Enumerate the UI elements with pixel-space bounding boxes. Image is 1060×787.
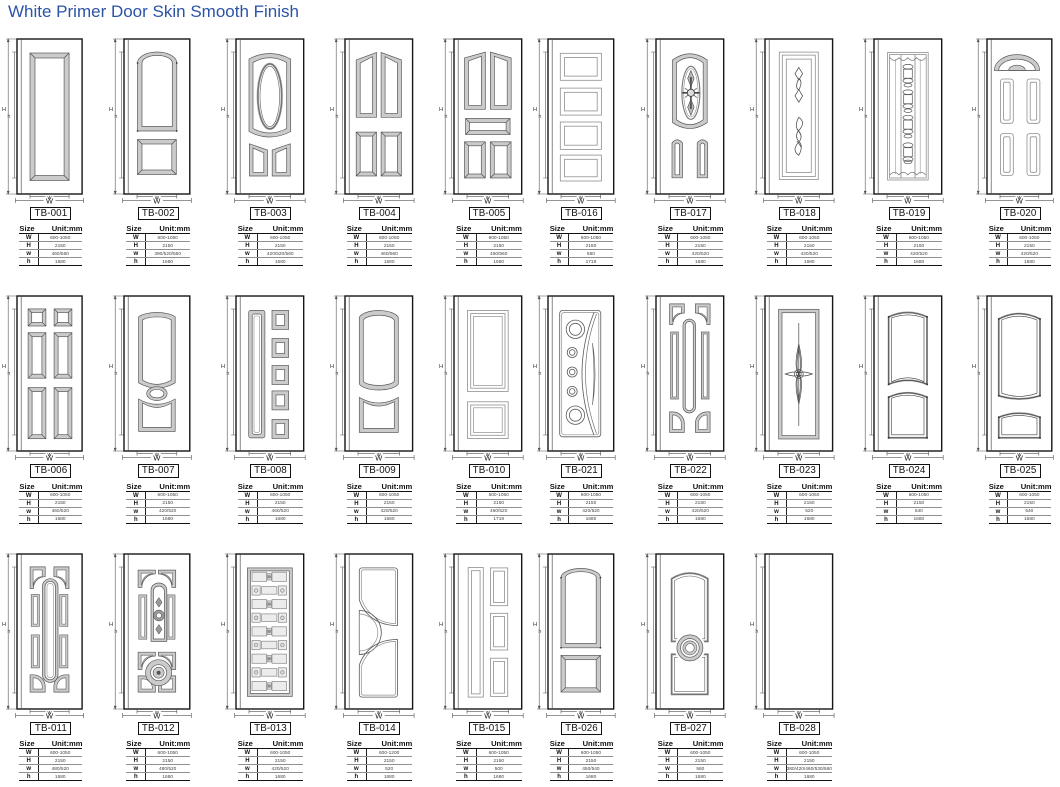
svg-text:h: h: [538, 371, 541, 377]
svg-text:W: W: [154, 711, 161, 719]
svg-text:h: h: [646, 371, 649, 377]
svg-text:H: H: [533, 107, 537, 113]
svg-text:W: W: [266, 711, 273, 719]
svg-text:H: H: [109, 107, 113, 113]
svg-text:H: H: [750, 107, 754, 113]
svg-text:W: W: [577, 196, 584, 204]
svg-text:h: h: [8, 371, 11, 377]
svg-text:h: h: [646, 114, 649, 120]
svg-text:H: H: [859, 107, 863, 113]
svg-text:H: H: [972, 364, 976, 370]
svg-text:h: h: [755, 371, 758, 377]
svg-text:h: h: [8, 629, 11, 635]
svg-text:H: H: [641, 622, 645, 628]
svg-text:W: W: [375, 454, 382, 462]
svg-text:W: W: [484, 196, 491, 204]
svg-text:H: H: [109, 364, 113, 370]
svg-text:h: h: [445, 114, 448, 120]
svg-text:W: W: [375, 196, 382, 204]
svg-text:W: W: [46, 196, 53, 204]
svg-text:W: W: [266, 454, 273, 462]
svg-text:H: H: [641, 364, 645, 370]
svg-text:H: H: [221, 364, 225, 370]
svg-text:h: h: [335, 114, 338, 120]
svg-text:W: W: [686, 711, 693, 719]
svg-text:H: H: [330, 364, 334, 370]
svg-text:W: W: [484, 454, 491, 462]
svg-text:W: W: [266, 196, 273, 204]
svg-text:H: H: [533, 364, 537, 370]
svg-text:H: H: [221, 107, 225, 113]
svg-text:W: W: [795, 454, 802, 462]
svg-text:W: W: [905, 196, 912, 204]
svg-text:h: h: [865, 114, 868, 120]
svg-text:H: H: [109, 622, 113, 628]
svg-text:h: h: [977, 114, 980, 120]
svg-text:W: W: [577, 711, 584, 719]
svg-text:H: H: [750, 622, 754, 628]
svg-text:H: H: [330, 622, 334, 628]
svg-text:H: H: [2, 107, 6, 113]
svg-text:h: h: [226, 371, 229, 377]
svg-text:W: W: [484, 711, 491, 719]
svg-text:W: W: [686, 196, 693, 204]
svg-text:H: H: [221, 622, 225, 628]
svg-text:W: W: [577, 454, 584, 462]
svg-text:W: W: [375, 711, 382, 719]
svg-text:h: h: [646, 629, 649, 635]
svg-text:h: h: [538, 114, 541, 120]
svg-text:W: W: [1016, 454, 1023, 462]
svg-text:W: W: [154, 196, 161, 204]
svg-text:h: h: [755, 114, 758, 120]
svg-text:h: h: [8, 114, 11, 120]
svg-text:h: h: [445, 371, 448, 377]
svg-text:h: h: [226, 629, 229, 635]
svg-text:H: H: [533, 622, 537, 628]
svg-text:W: W: [46, 454, 53, 462]
svg-text:H: H: [2, 364, 6, 370]
svg-text:h: h: [335, 629, 338, 635]
svg-text:W: W: [795, 711, 802, 719]
svg-text:W: W: [154, 454, 161, 462]
svg-text:h: h: [115, 114, 118, 120]
svg-text:h: h: [445, 629, 448, 635]
svg-text:h: h: [115, 629, 118, 635]
svg-text:h: h: [755, 629, 758, 635]
svg-text:H: H: [972, 107, 976, 113]
svg-text:H: H: [330, 107, 334, 113]
svg-text:H: H: [2, 622, 6, 628]
svg-text:H: H: [439, 622, 443, 628]
svg-text:H: H: [750, 364, 754, 370]
svg-text:W: W: [686, 454, 693, 462]
svg-text:h: h: [538, 629, 541, 635]
svg-text:h: h: [115, 371, 118, 377]
svg-text:H: H: [439, 107, 443, 113]
svg-text:W: W: [1016, 196, 1023, 204]
svg-text:W: W: [46, 711, 53, 719]
svg-text:h: h: [977, 371, 980, 377]
svg-text:h: h: [865, 371, 868, 377]
svg-text:W: W: [795, 196, 802, 204]
svg-text:H: H: [859, 364, 863, 370]
svg-text:W: W: [905, 454, 912, 462]
svg-text:h: h: [335, 371, 338, 377]
svg-text:H: H: [439, 364, 443, 370]
svg-text:h: h: [226, 114, 229, 120]
svg-text:H: H: [641, 107, 645, 113]
